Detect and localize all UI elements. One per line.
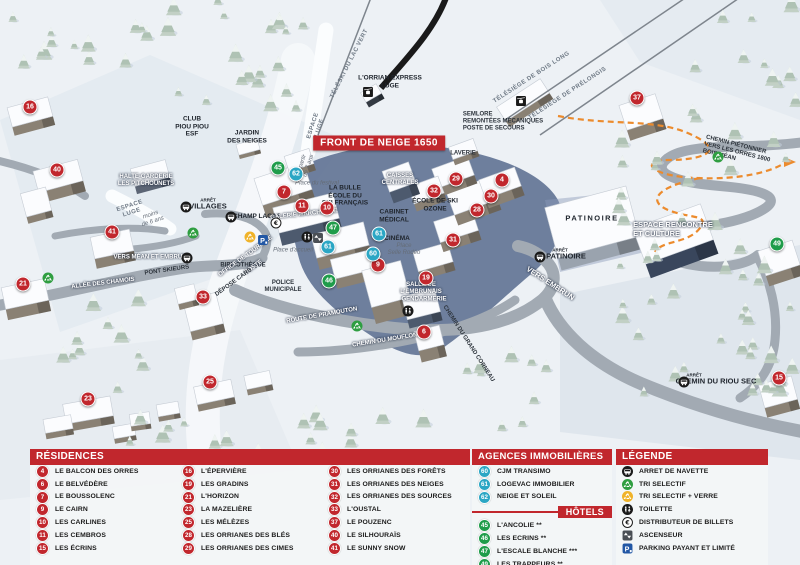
legend-item: 23LA MAZELIÈRE — [182, 503, 322, 516]
map-marker-47: 47 — [326, 221, 341, 236]
legend-item: 40LE SILHOURAÏS — [328, 529, 468, 542]
legend-item: 19LES GRADINS — [182, 478, 322, 491]
legend-item-label: CJM TRANSIMO — [497, 468, 551, 475]
legend-item-label: LES GRADINS — [201, 481, 249, 488]
poi-number-badge: 11 — [36, 529, 49, 542]
map-marker-37: 37 — [630, 91, 645, 106]
poi-number-badge: 15 — [36, 542, 49, 555]
legend-item: ARRET DE NAVETTE — [622, 465, 768, 478]
residences-panel: RÉSIDENCES 4LE BALCON DES ORRES6LE BELVÉ… — [30, 449, 470, 565]
poi-number-badge: 25 — [182, 516, 195, 529]
poi-number-badge: 29 — [182, 542, 195, 555]
map-marker-31: 31 — [446, 233, 461, 248]
legend-item-label: L'ÉPERVIÈRE — [201, 468, 247, 475]
legend-item-label: L'ANCOLIE ** — [497, 522, 542, 529]
poi-number-badge: 61 — [478, 478, 491, 491]
euro-icon: € — [271, 218, 282, 229]
legend-item: 31LES ORRIANES DES NEIGES — [328, 478, 468, 491]
elevator-icon — [622, 530, 633, 541]
bus-icon — [535, 252, 546, 263]
poi-number-badge: 62 — [478, 491, 491, 504]
map-marker-62: 62 — [289, 167, 304, 182]
legend-item-label: LES CARLINES — [55, 519, 106, 526]
agences-panel: AGENCES IMMOBILIÈRES 60CJM TRANSIMO61LOG… — [472, 449, 612, 565]
legend-item: 16L'ÉPERVIÈRE — [182, 465, 322, 478]
poi-number-badge: 4 — [36, 465, 49, 478]
map-marker-6: 6 — [417, 325, 432, 340]
legend-item-label: LE SUNNY SNOW — [347, 545, 406, 552]
legend-item-label: L'HORIZON — [201, 493, 239, 500]
hotels-divider: HÔTELS — [472, 505, 612, 519]
map-marker-45: 45 — [271, 161, 286, 176]
legend-item-label: ARRET DE NAVETTE — [639, 468, 708, 475]
legend-item: 4LE BALCON DES ORRES — [36, 465, 176, 478]
legend-item: TRI SELECTIF — [622, 478, 768, 491]
legend-item-label: PARKING PAYANT ET LIMITÉ — [639, 545, 735, 552]
legend-item: 28LES ORRIANES DES BLÉS — [182, 529, 322, 542]
recycle-g-icon — [43, 273, 54, 284]
agences-header: AGENCES IMMOBILIÈRES — [472, 449, 612, 465]
parking-icon: P — [258, 235, 269, 246]
map-marker-46: 46 — [322, 274, 337, 289]
poi-number-badge: 6 — [36, 478, 49, 491]
map-marker-33: 33 — [196, 290, 211, 305]
bus-icon — [622, 466, 633, 477]
legend-item-label: LE BALCON DES ORRES — [55, 468, 138, 475]
map-marker-7: 7 — [277, 185, 292, 200]
poi-number-badge: 60 — [478, 465, 491, 478]
legend-item-label: LE POUZENC — [347, 519, 392, 526]
legend-item-label: LE SILHOURAÏS — [347, 532, 401, 539]
poi-number-badge: 19 — [182, 478, 195, 491]
recycle-g-icon — [622, 479, 633, 490]
legend-item: 45L'ANCOLIE ** — [478, 519, 612, 532]
poi-number-badge: 40 — [328, 529, 341, 542]
svg-text:€: € — [624, 520, 629, 527]
legend-item: 7LE BOUSSOLENC — [36, 491, 176, 504]
front-de-neige-banner: FRONT DE NEIGE 1650 — [313, 136, 445, 151]
map-marker-30: 30 — [484, 189, 499, 204]
legend-item-label: LES ÉCRINS — [55, 545, 97, 552]
legend-item-label: TRI SELECTIF — [639, 481, 686, 488]
legend-item-label: LA MAZELIÈRE — [201, 506, 252, 513]
legend-item: PPARKING PAYANT ET LIMITÉ — [622, 542, 768, 555]
map-marker-61: 61 — [321, 240, 336, 255]
legend-item-label: LES ORRIANES DES CIMES — [201, 545, 293, 552]
euro-icon: € — [622, 517, 633, 528]
poi-number-badge: 21 — [182, 491, 195, 504]
legend-item-label: LES ORRIANES DES SOURCES — [347, 493, 452, 500]
legend-item-label: LES CEMBROS — [55, 532, 106, 539]
legend-item: 41LE SUNNY SNOW — [328, 542, 468, 555]
legend-item: 21L'HORIZON — [182, 491, 322, 504]
map-marker-21: 21 — [16, 277, 31, 292]
wc-icon — [302, 232, 313, 243]
legend-item-label: L'OUSTAL — [347, 506, 381, 513]
legend-item-label: LES ORRIANES DES NEIGES — [347, 481, 444, 488]
legend-item: ASCENSEUR — [622, 529, 768, 542]
svg-text:P: P — [260, 237, 265, 245]
bus-icon — [226, 212, 237, 223]
poi-number-badge: 23 — [182, 503, 195, 516]
legend-item: 62NEIGE ET SOLEIL — [478, 491, 612, 504]
legend-item-label: LES ORRIANES DES BLÉS — [201, 532, 290, 539]
hotels-header: HÔTELS — [558, 506, 612, 518]
recycle-y-icon — [622, 491, 633, 502]
bus-icon — [679, 377, 690, 388]
legend-item: 29LES ORRIANES DES CIMES — [182, 542, 322, 555]
recycle-g-icon — [713, 152, 724, 163]
legend-item: 15LES ÉCRINS — [36, 542, 176, 555]
poi-number-badge: 37 — [328, 516, 341, 529]
legend-item: 10LES CARLINES — [36, 516, 176, 529]
lift-icon — [363, 87, 374, 98]
legend-item: 30LES ORRIANES DES FORÊTS — [328, 465, 468, 478]
legend-item-label: LE BOUSSOLENC — [55, 493, 115, 500]
legend-item: 32LES ORRIANES DES SOURCES — [328, 491, 468, 504]
poi-number-badge: 7 — [36, 491, 49, 504]
legend-item: 61LOGEVAC IMMOBILIER — [478, 478, 612, 491]
legend-item: 33L'OUSTAL — [328, 503, 468, 516]
wc-icon — [622, 504, 633, 515]
poi-number-badge: 45 — [478, 519, 491, 532]
map-marker-16: 16 — [23, 100, 38, 115]
legende-panel: LÉGENDE ARRET DE NAVETTETRI SELECTIFTRI … — [616, 449, 768, 565]
legend-item: 46LES ECRINS ** — [478, 532, 612, 545]
legend-item: 25LES MÉLÈZES — [182, 516, 322, 529]
map-marker-19: 19 — [419, 271, 434, 286]
map-marker-60: 60 — [366, 247, 381, 262]
legend-item: 60CJM TRANSIMO — [478, 465, 612, 478]
legend-item-label: LE CAIRN — [55, 506, 88, 513]
map-marker-4: 4 — [495, 173, 510, 188]
wc-icon — [403, 306, 414, 317]
legende-header: LÉGENDE — [616, 449, 768, 465]
poi-number-badge: 47 — [478, 545, 491, 558]
legend-item-label: LES TRAPPEURS ** — [497, 561, 563, 565]
recycle-g-icon — [188, 228, 199, 239]
legend-item-label: DISTRIBUTEUR DE BILLETS — [639, 519, 733, 526]
map-marker-61: 61 — [372, 227, 387, 242]
legend-item-label: TRI SELECTIF + VERRE — [639, 493, 718, 500]
legend-item-label: ASCENSEUR — [639, 532, 683, 539]
map-marker-40: 40 — [50, 163, 65, 178]
poi-number-badge: 31 — [328, 478, 341, 491]
poi-number-badge: 16 — [182, 465, 195, 478]
poi-number-badge: 30 — [328, 465, 341, 478]
legend-item-label: LES ORRIANES DES FORÊTS — [347, 468, 446, 475]
legend-item-label: LOGEVAC IMMOBILIER — [497, 481, 575, 488]
legend-item: 6LE BELVÉDÈRE — [36, 478, 176, 491]
lift-icon — [516, 96, 527, 107]
poi-number-badge: 10 — [36, 516, 49, 529]
map-marker-11: 11 — [295, 199, 310, 214]
poi-number-badge: 32 — [328, 491, 341, 504]
legend-item-label: LES MÉLÈZES — [201, 519, 249, 526]
map-marker-25: 25 — [203, 375, 218, 390]
poi-number-badge: 28 — [182, 529, 195, 542]
map-marker-41: 41 — [105, 225, 120, 240]
svg-text:P: P — [625, 545, 630, 553]
legend-item-label: LES ECRINS ** — [497, 535, 546, 542]
map-marker-23: 23 — [81, 392, 96, 407]
parking-icon: P — [622, 543, 633, 554]
legend-item: 49LES TRAPPEURS ** — [478, 558, 612, 565]
poi-number-badge: 49 — [478, 558, 491, 565]
map-marker-15: 15 — [772, 371, 787, 386]
map-marker-49: 49 — [770, 237, 785, 252]
map-marker-29: 29 — [449, 172, 464, 187]
map-marker-28: 28 — [470, 203, 485, 218]
recycle-g-icon — [352, 321, 363, 332]
legend-item: TRI SELECTIF + VERRE — [622, 491, 768, 504]
recycle-y-icon — [245, 232, 256, 243]
map-marker-32: 32 — [427, 184, 442, 199]
residences-header: RÉSIDENCES — [30, 449, 470, 465]
legend-item-label: NEIGE ET SOLEIL — [497, 493, 557, 500]
svg-text:€: € — [273, 220, 278, 227]
bus-icon — [182, 253, 193, 264]
legend-item: 11LES CEMBROS — [36, 529, 176, 542]
poi-number-badge: 46 — [478, 532, 491, 545]
legend-item-label: TOILETTE — [639, 506, 673, 513]
legend-item: TOILETTE — [622, 503, 768, 516]
legend-item: 37LE POUZENC — [328, 516, 468, 529]
legend-item: 9LE CAIRN — [36, 503, 176, 516]
poi-number-badge: 9 — [36, 503, 49, 516]
map-marker-10: 10 — [320, 201, 335, 216]
legend-item-label: L'ESCALE BLANCHE *** — [497, 548, 577, 555]
legend-item-label: LE BELVÉDÈRE — [55, 481, 108, 488]
poi-number-badge: 33 — [328, 503, 341, 516]
legend-item: €DISTRIBUTEUR DE BILLETS — [622, 516, 768, 529]
resort-map-page: L'ORRIAN EXPRESSLUGETÉLÉSKI DU LAC VERTE… — [0, 0, 800, 565]
legend-item: 47L'ESCALE BLANCHE *** — [478, 545, 612, 558]
poi-number-badge: 41 — [328, 542, 341, 555]
bus-icon — [181, 202, 192, 213]
